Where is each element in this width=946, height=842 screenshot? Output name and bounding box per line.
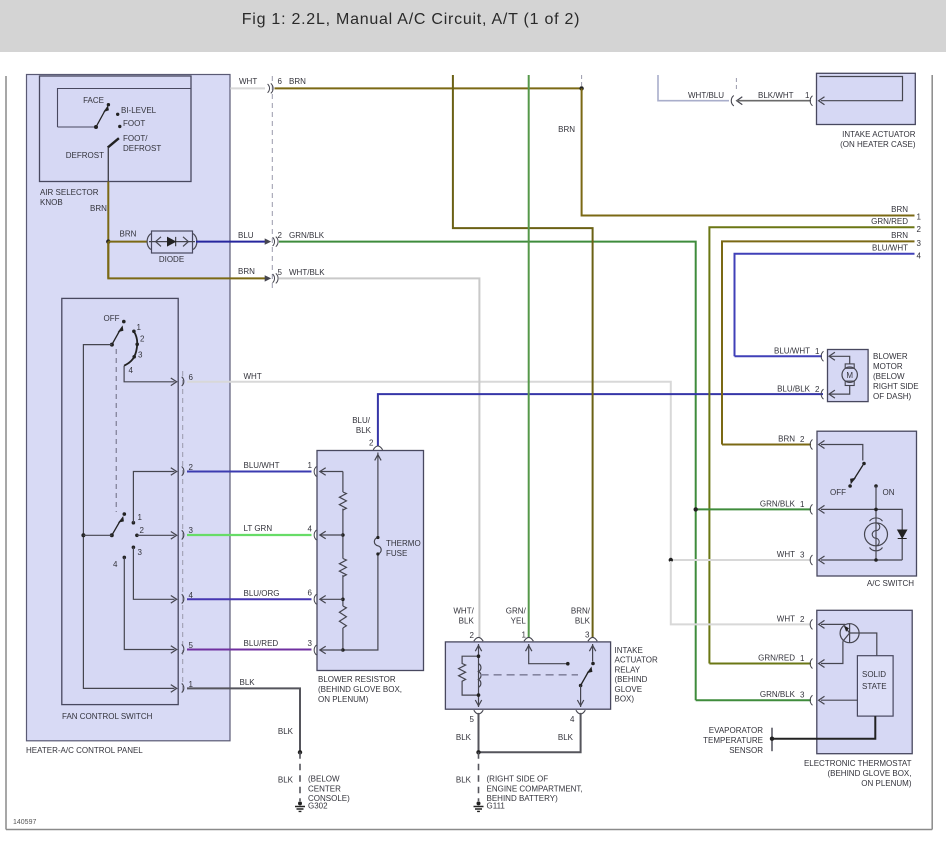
svg-text:(RIGHT SIDE OF: (RIGHT SIDE OF [487, 775, 549, 784]
svg-text:INTAKE: INTAKE [615, 646, 643, 655]
svg-text:STATE: STATE [862, 682, 887, 691]
svg-text:(BEHIND GLOVE BOX,: (BEHIND GLOVE BOX, [827, 769, 911, 778]
svg-text:GRN/RED: GRN/RED [758, 654, 795, 663]
svg-text:GRN/BLK: GRN/BLK [760, 690, 796, 699]
svg-text:BLOWER RESISTOR: BLOWER RESISTOR [318, 675, 396, 684]
svg-text:4: 4 [917, 252, 922, 261]
svg-text:FUSE: FUSE [386, 549, 407, 558]
svg-text:3: 3 [138, 351, 143, 360]
svg-text:6: 6 [189, 373, 194, 382]
svg-text:BLK/WHT: BLK/WHT [758, 91, 794, 100]
svg-text:LT GRN: LT GRN [244, 524, 273, 533]
svg-text:BLU/WHT: BLU/WHT [244, 461, 280, 470]
svg-text:FACE: FACE [83, 96, 104, 105]
svg-text:A/C SWITCH: A/C SWITCH [867, 579, 914, 588]
svg-text:BRN: BRN [891, 231, 908, 240]
svg-text:3: 3 [917, 239, 922, 248]
svg-text:BLOWER: BLOWER [873, 352, 908, 361]
svg-text:WHT/: WHT/ [453, 607, 474, 616]
svg-text:INTAKE ACTUATOR: INTAKE ACTUATOR [842, 130, 916, 139]
svg-text:6: 6 [308, 589, 313, 598]
svg-text:RIGHT SIDE: RIGHT SIDE [873, 382, 919, 391]
svg-text:1: 1 [137, 323, 142, 332]
svg-text:G302: G302 [308, 802, 328, 811]
svg-text:MOTOR: MOTOR [873, 362, 903, 371]
svg-text:2: 2 [800, 615, 805, 624]
svg-text:3: 3 [308, 639, 313, 648]
svg-text:1: 1 [138, 513, 143, 522]
svg-text:3: 3 [189, 526, 194, 535]
svg-text:GRN/: GRN/ [506, 607, 527, 616]
svg-text:SOLID: SOLID [862, 670, 886, 679]
svg-text:GRN/BLK: GRN/BLK [760, 500, 796, 509]
svg-text:3: 3 [585, 631, 590, 640]
svg-text:RELAY: RELAY [615, 665, 641, 674]
svg-text:2: 2 [470, 631, 475, 640]
svg-text:4: 4 [570, 715, 575, 724]
svg-text:OFF: OFF [104, 314, 120, 323]
svg-text:KNOB: KNOB [40, 198, 63, 207]
svg-text:1: 1 [805, 91, 810, 100]
svg-text:4: 4 [129, 366, 134, 375]
svg-text:BI-LEVEL: BI-LEVEL [121, 106, 157, 115]
svg-text:BRN: BRN [778, 435, 795, 444]
svg-text:BLK: BLK [278, 775, 294, 784]
svg-text:BOX): BOX) [615, 695, 635, 704]
svg-text:WHT/BLU: WHT/BLU [688, 91, 724, 100]
svg-text:OF DASH): OF DASH) [873, 392, 912, 401]
svg-text:ON: ON [883, 488, 895, 497]
svg-text:(BEHIND GLOVE BOX,: (BEHIND GLOVE BOX, [318, 685, 402, 694]
svg-text:1: 1 [800, 654, 805, 663]
svg-text:GRN/RED: GRN/RED [871, 217, 908, 226]
svg-text:BRN: BRN [558, 125, 575, 134]
svg-text:CENTER: CENTER [308, 784, 341, 793]
svg-text:WHT/BLK: WHT/BLK [289, 268, 325, 277]
svg-text:M: M [846, 371, 853, 380]
svg-text:(BEHIND: (BEHIND [615, 675, 648, 684]
svg-text:AIR SELECTOR: AIR SELECTOR [40, 188, 99, 197]
svg-text:ACTUATOR: ACTUATOR [615, 656, 658, 665]
svg-text:140597: 140597 [13, 819, 36, 826]
svg-text:EVAPORATOR: EVAPORATOR [709, 726, 763, 735]
svg-text:ENGINE COMPARTMENT,: ENGINE COMPARTMENT, [487, 784, 583, 793]
svg-text:(BELOW: (BELOW [873, 372, 905, 381]
svg-text:1: 1 [917, 213, 922, 222]
svg-text:BRN: BRN [891, 205, 908, 214]
svg-text:ON PLENUM): ON PLENUM) [318, 695, 369, 704]
svg-text:GRN/BLK: GRN/BLK [289, 231, 325, 240]
svg-text:2: 2 [369, 439, 374, 448]
svg-text:ELECTRONIC THERMOSTAT: ELECTRONIC THERMOSTAT [804, 759, 912, 768]
svg-text:3: 3 [800, 551, 805, 560]
svg-text:5: 5 [278, 268, 283, 277]
svg-text:2: 2 [800, 435, 805, 444]
svg-text:1: 1 [815, 347, 820, 356]
svg-text:3: 3 [138, 548, 143, 557]
svg-text:WHT: WHT [244, 372, 262, 381]
svg-text:5: 5 [470, 715, 475, 724]
svg-text:DEFROST: DEFROST [66, 151, 104, 160]
svg-text:WHT: WHT [777, 615, 795, 624]
svg-text:Fig 1: 2.2L, Manual A/C Circui: Fig 1: 2.2L, Manual A/C Circuit, A/T (1 … [242, 11, 580, 28]
svg-text:BLK: BLK [456, 775, 472, 784]
svg-text:G111: G111 [487, 802, 506, 811]
svg-text:WHT: WHT [777, 550, 795, 559]
svg-text:HEATER-A/C CONTROL PANEL: HEATER-A/C CONTROL PANEL [26, 746, 143, 755]
svg-text:(BELOW: (BELOW [308, 775, 340, 784]
svg-text:SENSOR: SENSOR [729, 746, 763, 755]
svg-text:4: 4 [308, 525, 313, 534]
svg-text:BLK: BLK [575, 617, 591, 626]
svg-text:4: 4 [113, 560, 118, 569]
svg-text:2: 2 [815, 385, 820, 394]
svg-text:BRN: BRN [120, 230, 137, 239]
svg-text:6: 6 [278, 77, 283, 86]
svg-text:WHT: WHT [239, 77, 257, 86]
svg-text:ON PLENUM): ON PLENUM) [861, 779, 912, 788]
svg-text:2: 2 [278, 231, 283, 240]
svg-text:BRN: BRN [90, 204, 107, 213]
svg-text:BLK: BLK [278, 727, 294, 736]
svg-text:BLU/: BLU/ [352, 416, 371, 425]
svg-text:FOOT: FOOT [123, 119, 145, 128]
svg-text:BRN/: BRN/ [571, 607, 591, 616]
svg-text:BLK: BLK [459, 617, 475, 626]
svg-text:BLU/RED: BLU/RED [244, 639, 279, 648]
svg-text:BLK: BLK [356, 426, 372, 435]
svg-text:BLK: BLK [240, 678, 256, 687]
svg-text:BRN: BRN [238, 267, 255, 276]
svg-text:FOOT/: FOOT/ [123, 134, 148, 143]
svg-text:2: 2 [140, 335, 145, 344]
svg-text:BLK: BLK [558, 733, 574, 742]
svg-text:BLU/WHT: BLU/WHT [872, 244, 908, 253]
svg-text:BLU/WHT: BLU/WHT [774, 347, 810, 356]
svg-text:(ON HEATER CASE): (ON HEATER CASE) [840, 140, 916, 149]
svg-text:THERMO: THERMO [386, 539, 421, 548]
svg-text:BLU/ORG: BLU/ORG [244, 589, 280, 598]
svg-text:DIODE: DIODE [159, 255, 184, 264]
svg-text:GLOVE: GLOVE [615, 685, 643, 694]
svg-text:FAN CONTROL SWITCH: FAN CONTROL SWITCH [62, 712, 153, 721]
svg-text:OFF: OFF [830, 488, 846, 497]
svg-text:TEMPERATURE: TEMPERATURE [703, 736, 763, 745]
svg-text:1: 1 [308, 461, 313, 470]
svg-text:BLU: BLU [238, 231, 254, 240]
svg-text:YEL: YEL [511, 617, 527, 626]
svg-text:BRN: BRN [289, 77, 306, 86]
svg-text:2: 2 [917, 225, 922, 234]
svg-text:BLK: BLK [456, 733, 472, 742]
svg-text:BLU/BLK: BLU/BLK [777, 385, 811, 394]
svg-text:2: 2 [140, 526, 145, 535]
svg-text:1: 1 [800, 500, 805, 509]
svg-text:DEFROST: DEFROST [123, 144, 161, 153]
svg-text:3: 3 [800, 691, 805, 700]
